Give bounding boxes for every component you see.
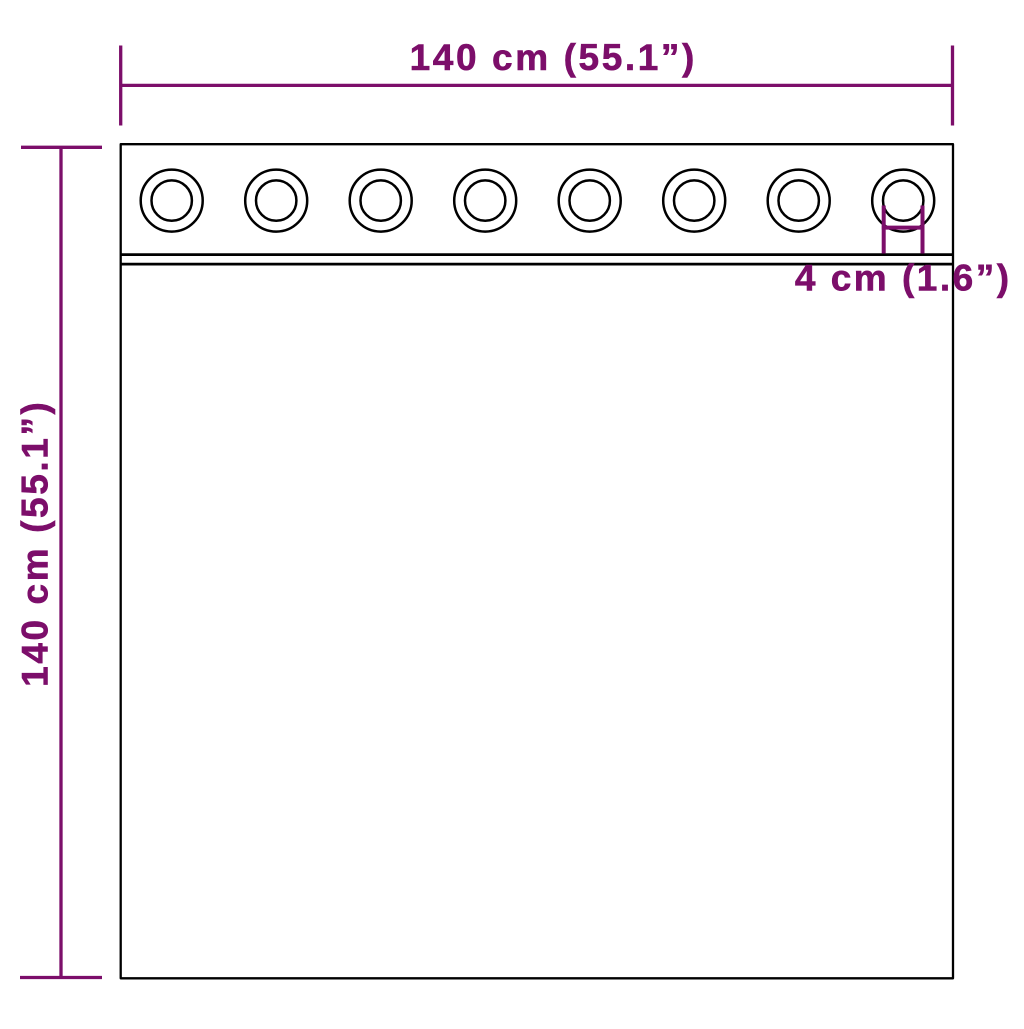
svg-text:140 cm (55.1”): 140 cm (55.1”) xyxy=(15,400,56,687)
svg-text:140 cm (55.1”): 140 cm (55.1”) xyxy=(410,37,697,78)
svg-text:4 cm (1.6”): 4 cm (1.6”) xyxy=(795,257,1012,298)
